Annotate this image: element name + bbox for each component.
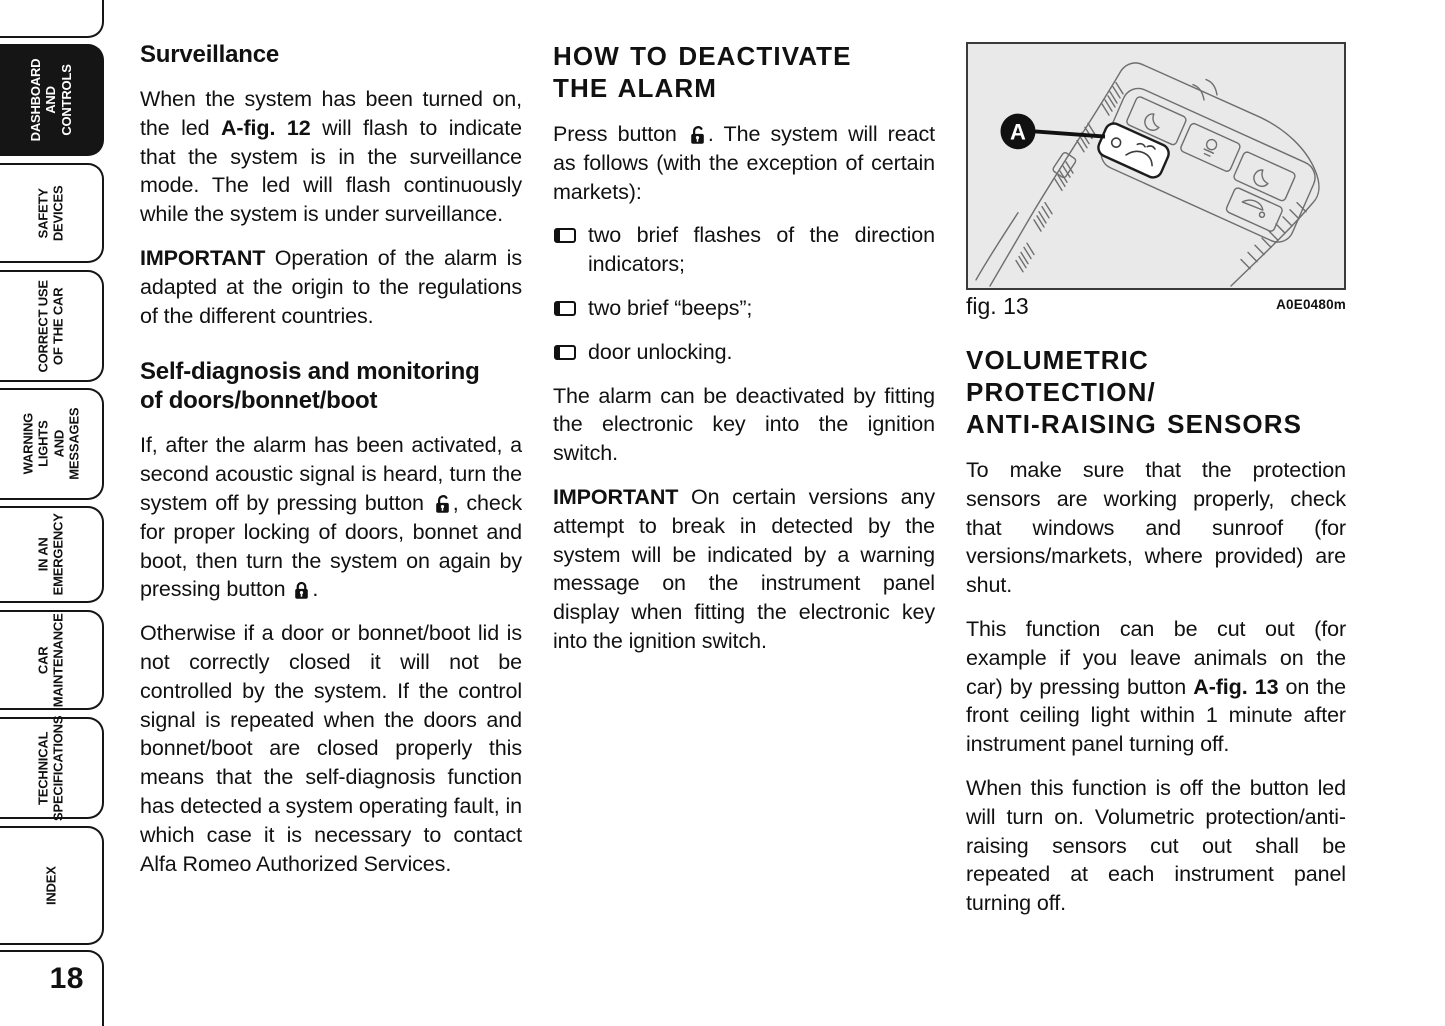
tab-label: CORRECT USE OF THE CAR [36,275,67,377]
paragraph: Press button . The system will react as … [553,120,935,206]
square-bullet-icon [554,301,576,316]
tab-stub-partial [0,0,104,38]
tab-label: CAR MAINTENANCE [36,609,67,711]
heading-surveillance: Surveillance [140,40,522,69]
manual-page: DASHBOARD AND CONTROLS SAFETY DEVICES CO… [0,0,1445,1026]
tab-dashboard-and-controls: DASHBOARD AND CONTROLS [0,44,104,156]
tab-label: INDEX [43,834,58,936]
figure-caption: fig. 13 [966,293,1029,320]
tab-technical-specifications: TECHNICAL SPECIFICATIONS [0,717,104,819]
paragraph: To make sure that the protection sensors… [966,456,1346,600]
paragraph: This function can be cut out (for exampl… [966,615,1346,759]
paragraph: When the system has been turned on, the … [140,85,522,229]
list-item: two brief “beeps”; [553,294,935,323]
tab-index: INDEX [0,826,104,945]
tab-label: SAFETY DEVICES [36,162,67,264]
column-surveillance: Surveillance When the system has been tu… [140,40,522,893]
paragraph-important: IMPORTANT Operation of the alarm is adap… [140,244,522,330]
heading-volumetric-protection: VOLUMETRIC PROTECTION/ ANTI-RAISING SENS… [966,344,1346,440]
callout-letter: A [1010,119,1026,144]
lock-open-icon [689,125,706,145]
callout-line [1035,131,1105,136]
tab-car-maintenance: CAR MAINTENANCE [0,610,104,710]
column-deactivate-alarm: HOW TO DEACTIVATE THE ALARM Press button… [553,40,935,671]
paragraph: Otherwise if a door or bonnet/boot lid i… [140,619,522,878]
paragraph: The alarm can be deactivated by fitting … [553,382,935,468]
reading-light-icon [1251,168,1272,189]
page-number-tab: 18 [0,950,104,1026]
paragraph: If, after the alarm has been activated, … [140,431,522,604]
list-item: two brief flashes of the direction indic… [553,221,935,279]
list-item: door unlocking. [553,338,935,367]
square-bullet-icon [554,345,576,360]
ceiling-light-drawing: A [968,44,1344,288]
paragraph: When this function is off the button led… [966,774,1346,918]
tab-label: WARNING LIGHTS AND MESSAGES [20,393,81,495]
tab-warning-lights-and-messages: WARNING LIGHTS AND MESSAGES [0,388,104,500]
tab-label: IN AN EMERGENCY [36,504,67,606]
figure-caption-row: fig. 13 A0E0480m [966,293,1346,320]
paragraph-important: IMPORTANT On certain versions any attemp… [553,483,935,656]
lock-closed-icon [293,580,310,600]
figure-13-box: A [966,42,1346,290]
button-a [1096,121,1172,181]
reading-light-icon [1142,112,1163,133]
figure-code: A0E0480m [1276,297,1346,312]
tab-in-an-emergency: IN AN EMERGENCY [0,506,104,603]
tab-safety-devices: SAFETY DEVICES [0,163,104,263]
tab-label: TECHNICAL SPECIFICATIONS [36,715,67,820]
column-volumetric-protection: A fig. 13 A0E0480m VOLUMETRIC PROTECTION… [966,42,1346,933]
page-number: 18 [50,952,102,996]
bulb-icon [1205,138,1218,151]
heading-self-diagnosis: Self-diagnosis and monitoring of doors/b… [140,357,522,415]
heading-how-to-deactivate: HOW TO DEACTIVATE THE ALARM [553,40,935,104]
lock-open-icon [434,494,451,514]
tab-correct-use-of-the-car: CORRECT USE OF THE CAR [0,270,104,382]
square-bullet-icon [554,228,576,243]
tab-label: DASHBOARD AND CONTROLS [28,49,74,151]
